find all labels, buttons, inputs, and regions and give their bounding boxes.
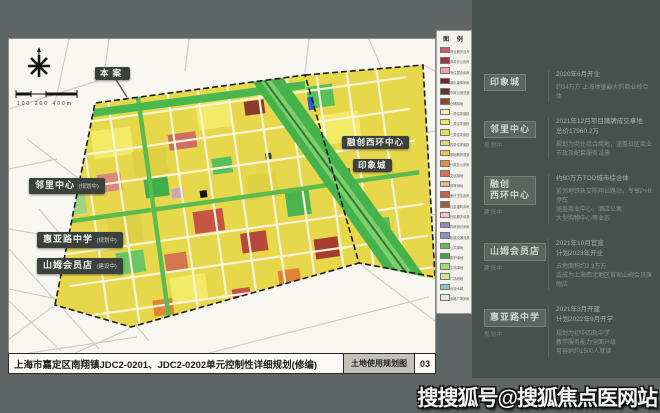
text-line: 教学服务能力全面升级 bbox=[556, 339, 652, 348]
legend-swatch bbox=[440, 232, 450, 239]
legend-row: 娱乐康体用地 bbox=[440, 76, 469, 86]
legend-label: 一类住宅组团用地 bbox=[450, 111, 469, 116]
panel-section: 邻里中心 规划中 2021年12月项目摘牌成交拿地总价17960.2万 规划为商… bbox=[484, 117, 652, 159]
section-details: 紧邻地铁轨交陈翔公路站，专享P+R停车涵盖商业中心、酒店公寓大型购物中心等业态 bbox=[556, 188, 652, 224]
legend-label: 生态绿地 bbox=[450, 265, 463, 270]
text-line: 或成为上海西北地区首家山姆会员旗舰店 bbox=[556, 272, 652, 290]
legend-label: 社会福利用地 bbox=[450, 204, 469, 209]
section-facts: 2021年12月项目摘牌成交拿地总价17960.2万 bbox=[556, 117, 652, 137]
map-legend: 图 例 商业服务业用地 商务办公用地 商住混合用地 bbox=[436, 30, 472, 314]
section-title: 融创 西环中心 bbox=[484, 176, 536, 205]
legend-swatch bbox=[440, 67, 450, 74]
section-facts: 2021年3月开建计划2022年9月开学 bbox=[556, 305, 652, 325]
legend-swatch bbox=[440, 170, 450, 177]
legend-label: 道路广场用地 bbox=[450, 296, 469, 301]
legend-swatch bbox=[440, 294, 450, 301]
section-title: 山姆会员店 bbox=[484, 243, 546, 260]
legend-swatch bbox=[440, 78, 450, 85]
text-line: 2020年6月开业 bbox=[556, 70, 652, 80]
legend-swatch bbox=[440, 273, 450, 280]
tag-linli-name: 邻里中心 bbox=[35, 180, 75, 190]
legend-label: 体育用地 bbox=[450, 183, 463, 188]
legend-swatch bbox=[440, 222, 450, 229]
legend-label: 科研设计用地 bbox=[450, 224, 469, 229]
section-facts: 2021年10月官宣计划2023年开业 bbox=[556, 239, 652, 259]
legend-label: 公共绿地 bbox=[450, 245, 463, 250]
section-title: 惠亚路中学 bbox=[484, 309, 546, 326]
legend-row: 二类住宅组团用地 bbox=[440, 117, 469, 127]
legend-row: 商住混合用地 bbox=[440, 66, 469, 76]
legend-label: 仓储用地 bbox=[450, 101, 463, 106]
panel-section: 惠亚路中学 规划中 2021年3月开建计划2022年9月开学 规划为初中四轨中学… bbox=[484, 305, 652, 356]
legend-label: 行政办公用地 bbox=[450, 162, 469, 167]
tag-huiya-school: 惠亚路中学 (规划中) bbox=[37, 232, 123, 248]
legend-swatch bbox=[440, 160, 450, 167]
legend-swatch bbox=[440, 212, 450, 219]
tag-sams-name: 山姆会员店 bbox=[43, 260, 93, 270]
text-line: 规划为商住综合用地，涵盖社区商业 bbox=[556, 141, 652, 150]
legend-row: 社区服务设施用地 bbox=[440, 210, 469, 220]
legend-swatch bbox=[440, 201, 450, 208]
section-status: 规划中 bbox=[484, 330, 548, 338]
section-details: 规划为初中四轨中学教学服务能力全面升级可容纳约1500人就读 bbox=[556, 330, 652, 357]
legend-swatch bbox=[440, 47, 450, 54]
legend-row: 市政公用设施用地 bbox=[440, 86, 469, 96]
text-line: 约34万方 上海体量最大的商业综合体 bbox=[556, 84, 652, 102]
project-info-panel: 印象城 2020年6月开业 约34万方 上海体量最大的商业综合体 邻里中心 规划… bbox=[472, 0, 660, 378]
legend-list: 商业服务业用地 商务办公用地 商住混合用地 娱乐康体用地 bbox=[440, 45, 469, 302]
legend-label: 广场用地 bbox=[450, 276, 463, 281]
sheet-number: 03 bbox=[414, 354, 435, 373]
text-line: 大型购物中心等业态 bbox=[556, 215, 652, 224]
legend-swatch bbox=[440, 253, 450, 260]
legend-swatch bbox=[440, 98, 450, 105]
section-details: 占地面积约2.3万方或成为上海西北地区首家山姆会员旗舰店 bbox=[556, 263, 652, 290]
panel-section: 山姆会员店 建设中 2021年10月官宣计划2023年开业 占地面积约2.3万方… bbox=[484, 239, 652, 290]
legend-label: 娱乐康体用地 bbox=[450, 80, 469, 85]
legend-label: 轨道交通设施用地 bbox=[450, 235, 469, 240]
legend-swatch bbox=[440, 140, 450, 147]
legend-swatch bbox=[440, 150, 450, 157]
text-line: 2021年3月开建 bbox=[556, 305, 652, 315]
land-use-map-panel: 100 200 400m 本案 邻里中心 (规划中) 惠亚路中学 (规划中) 山… bbox=[8, 38, 436, 374]
text-line: 约60万方TOD城市综合体 bbox=[556, 174, 652, 184]
legend-row: 基础教育设施用地 bbox=[440, 148, 469, 158]
legend-swatch bbox=[440, 109, 450, 116]
section-title: 印象城 bbox=[484, 74, 526, 91]
text-line: 计划2023年开业 bbox=[556, 249, 652, 259]
section-facts: 2020年6月开业 bbox=[556, 70, 652, 80]
legend-row: 轨道交通设施用地 bbox=[440, 230, 469, 240]
legend-label: 防护绿地 bbox=[450, 255, 463, 260]
text-line: 2021年12月项目摘牌成交拿地 bbox=[556, 117, 652, 127]
legend-swatch bbox=[440, 119, 450, 126]
section-details: 约34万方 上海体量最大的商业综合体 bbox=[556, 84, 652, 102]
legend-row: 商业服务业用地 bbox=[440, 45, 469, 55]
legend-swatch bbox=[440, 129, 450, 136]
legend-swatch bbox=[440, 191, 450, 198]
text-line: 总价17960.2万 bbox=[556, 127, 652, 137]
panel-section: 印象城 2020年6月开业 约34万方 上海体量最大的商业综合体 bbox=[484, 70, 652, 102]
text-line: 占地面积约2.3万方 bbox=[556, 263, 652, 272]
tag-sams-status: (建设中) bbox=[97, 264, 117, 270]
section-status: 建设中 bbox=[484, 208, 548, 216]
legend-row: 社会福利用地 bbox=[440, 199, 469, 209]
section-title: 邻里中心 bbox=[484, 121, 536, 138]
legend-label: 市政公用设施用地 bbox=[450, 90, 469, 95]
tag-huiya-status: (规划中) bbox=[97, 238, 117, 244]
legend-label: 三类住宅组团用地 bbox=[450, 132, 469, 137]
legend-label: 商住混合用地 bbox=[450, 70, 469, 75]
plan-title: 上海市嘉定区南翔镇JDC2-0201、JDC2-0202单元控制性详细规划(修编… bbox=[9, 357, 343, 371]
legend-row: 道路广场用地 bbox=[440, 292, 469, 302]
legend-label: 商业服务业用地 bbox=[450, 49, 469, 54]
sohu-watermark: 搜搜狐号@搜狐焦点医网站 bbox=[418, 382, 657, 412]
section-details: 规划为商住综合用地，涵盖社区商业市政及配套服务设施 bbox=[556, 141, 652, 159]
legend-row: 三类住宅组团用地 bbox=[440, 127, 469, 137]
legend-swatch bbox=[440, 284, 450, 291]
legend-label: 商务办公用地 bbox=[450, 59, 469, 64]
panel-section: 融创 西环中心 建设中 约60万方TOD城市综合体 紧邻地铁轨交陈翔公路站，专享… bbox=[484, 174, 652, 224]
legend-label: 二类住宅组团用地 bbox=[450, 121, 469, 126]
tag-benan: 本案 bbox=[95, 67, 130, 80]
legend-swatch bbox=[440, 57, 450, 64]
legend-swatch bbox=[440, 88, 450, 95]
legend-row: 科研设计用地 bbox=[440, 220, 469, 230]
section-status: 规划中 bbox=[484, 141, 548, 149]
section-status: 建设中 bbox=[484, 264, 548, 272]
tag-sunac-center: 融创西环中心 bbox=[342, 136, 409, 149]
text-line: 规划为初中四轨中学 bbox=[556, 330, 652, 339]
legend-label: 基础教育设施用地 bbox=[450, 152, 469, 157]
legend-label: 社区服务设施用地 bbox=[450, 214, 469, 219]
legend-swatch bbox=[440, 263, 450, 270]
compass-icon bbox=[23, 47, 93, 88]
tag-sams-club: 山姆会员店 (建设中) bbox=[37, 258, 123, 274]
legend-label: 医疗卫生用地 bbox=[450, 193, 469, 198]
page: 100 200 400m 本案 邻里中心 (规划中) 惠亚路中学 (规划中) 山… bbox=[0, 0, 660, 413]
tag-linli-center: 邻里中心 (规划中) bbox=[29, 178, 105, 194]
text-line: 紧邻地铁轨交陈翔公路站，专享P+R停车 bbox=[556, 188, 652, 206]
text-line: 计划2022年9月开学 bbox=[556, 315, 652, 325]
legend-label: 四类住宅组团用地 bbox=[450, 142, 469, 147]
text-line: 市政及配套服务设施 bbox=[556, 150, 652, 159]
sheet-name: 土地使用规划图 bbox=[343, 354, 414, 373]
section-facts: 约60万方TOD城市综合体 bbox=[556, 174, 652, 184]
scale-bar: 100 200 400m bbox=[15, 85, 95, 107]
legend-row: 一类住宅组团用地 bbox=[440, 107, 469, 117]
tag-linli-status: (规划中) bbox=[79, 184, 99, 190]
tag-huiya-name: 惠亚路中学 bbox=[43, 234, 93, 244]
legend-label: 文化用地 bbox=[450, 173, 463, 178]
text-line: 2021年10月官宣 bbox=[556, 239, 652, 249]
legend-swatch bbox=[440, 181, 450, 188]
legend-row: 四类住宅组团用地 bbox=[440, 138, 469, 148]
legend-label: 河流水域 bbox=[450, 286, 463, 291]
legend-row: 医疗卫生用地 bbox=[440, 189, 469, 199]
text-line: 涵盖商业中心、酒店公寓 bbox=[556, 206, 652, 215]
text-line: 可容纳约1500人就读 bbox=[556, 348, 652, 357]
tag-yinxiang-city: 印象城 bbox=[353, 159, 392, 172]
scale-label: 100 200 400m bbox=[15, 101, 95, 107]
legend-swatch bbox=[440, 243, 450, 250]
drawing-title-bar: 上海市嘉定区南翔镇JDC2-0201、JDC2-0202单元控制性详细规划(修编… bbox=[8, 353, 436, 374]
